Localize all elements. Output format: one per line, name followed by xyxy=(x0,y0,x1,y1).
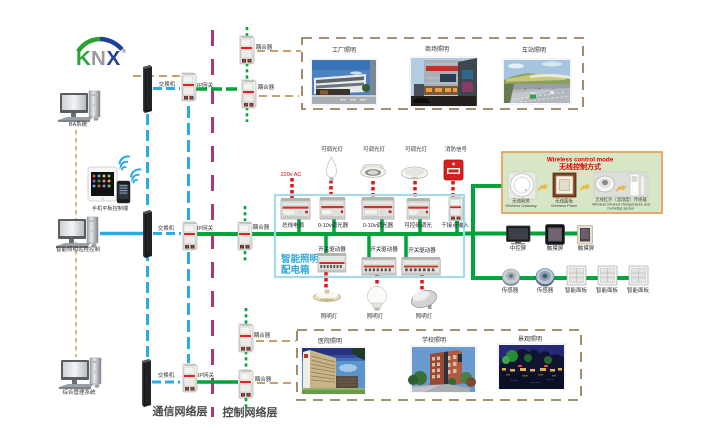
svg-text:Wireless Panel: Wireless Panel xyxy=(551,203,577,208)
svg-text:开关驱动器: 开关驱动器 xyxy=(318,245,346,253)
svg-text:N: N xyxy=(91,47,106,70)
svg-text:智能照明: 智能照明 xyxy=(281,253,320,265)
svg-text:Wireless Gateway: Wireless Gateway xyxy=(505,203,536,208)
svg-text:耦合器: 耦合器 xyxy=(258,83,275,91)
svg-text:无线控制方式: 无线控制方式 xyxy=(558,162,601,171)
svg-text:通信网络层: 通信网络层 xyxy=(153,404,208,418)
svg-text:K: K xyxy=(76,47,91,70)
svg-text:0-10v调光器: 0-10v调光器 xyxy=(363,221,394,229)
svg-text:开关驱动器: 开关驱动器 xyxy=(370,245,398,253)
svg-text:传感器: 传感器 xyxy=(537,286,554,294)
svg-text:综合管理系统: 综合管理系统 xyxy=(62,388,96,396)
svg-text:手机平板控制端: 手机平板控制端 xyxy=(92,204,128,212)
svg-text:IP网关: IP网关 xyxy=(197,224,214,232)
svg-text:Wireless control mode: Wireless control mode xyxy=(547,157,614,164)
svg-text:可调光灯: 可调光灯 xyxy=(321,145,344,153)
svg-text:耦合器: 耦合器 xyxy=(254,331,271,339)
svg-text:IP网关: IP网关 xyxy=(197,81,214,89)
svg-text:0-10v调光器: 0-10v调光器 xyxy=(318,221,349,229)
svg-text:智能照明远程控制: 智能照明远程控制 xyxy=(56,245,101,253)
svg-text:humidity) sensor: humidity) sensor xyxy=(607,207,635,211)
svg-text:学校照明: 学校照明 xyxy=(422,336,446,344)
svg-text:总线电源: 总线电源 xyxy=(282,221,305,229)
svg-text:开关驱动器: 开关驱动器 xyxy=(408,246,436,254)
svg-text:照明灯: 照明灯 xyxy=(321,312,338,320)
svg-text:中控屏: 中控屏 xyxy=(510,244,527,252)
svg-text:可调光灯: 可调光灯 xyxy=(363,145,386,153)
svg-text:220v AC: 220v AC xyxy=(281,172,302,178)
svg-text:交换机: 交换机 xyxy=(158,224,175,232)
svg-text:控制网络层: 控制网络层 xyxy=(223,405,278,419)
svg-text:商场照明: 商场照明 xyxy=(425,45,449,53)
svg-text:耦合器: 耦合器 xyxy=(255,375,272,383)
svg-text:干接点输入: 干接点输入 xyxy=(441,221,469,229)
svg-text:X: X xyxy=(107,47,121,70)
svg-text:传感器: 传感器 xyxy=(502,286,519,294)
svg-text:智能面板: 智能面板 xyxy=(627,286,650,294)
svg-text:交换机: 交换机 xyxy=(159,80,176,88)
svg-text:可调光灯: 可调光灯 xyxy=(405,145,428,153)
svg-text:智能面板: 智能面板 xyxy=(565,286,588,294)
svg-text:交换机: 交换机 xyxy=(158,371,175,379)
svg-text:触摸屏: 触摸屏 xyxy=(547,244,564,252)
svg-text:车站照明: 车站照明 xyxy=(522,46,546,54)
svg-text:IP网关: IP网关 xyxy=(198,371,215,379)
svg-text:配电箱: 配电箱 xyxy=(281,264,310,276)
svg-text:消防信号: 消防信号 xyxy=(445,145,468,153)
svg-text:智能面板: 智能面板 xyxy=(596,286,619,294)
svg-text:医院照明: 医院照明 xyxy=(318,337,342,345)
svg-text:可控硕调光: 可控硕调光 xyxy=(404,221,432,229)
svg-text:耦合器: 耦合器 xyxy=(256,43,273,51)
svg-text:触摸屏: 触摸屏 xyxy=(578,244,595,252)
svg-text:工厂照明: 工厂照明 xyxy=(332,47,356,54)
svg-text:景观照明: 景观照明 xyxy=(518,336,542,343)
svg-text:照明灯: 照明灯 xyxy=(367,312,384,320)
svg-text:耦合器: 耦合器 xyxy=(253,223,270,231)
svg-text:BA系统: BA系统 xyxy=(69,120,88,128)
svg-text:照明灯: 照明灯 xyxy=(416,312,433,320)
svg-text:®: ® xyxy=(122,48,126,55)
